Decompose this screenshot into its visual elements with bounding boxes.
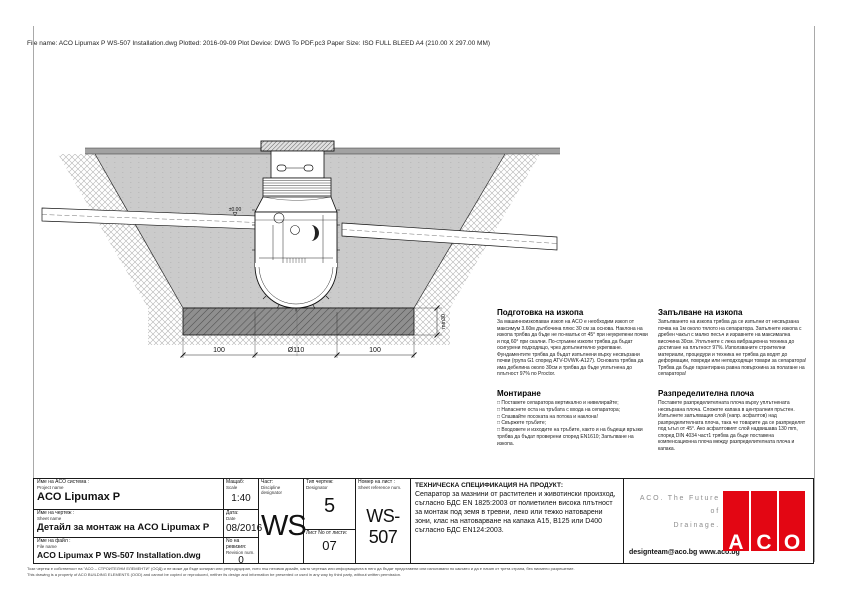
level-marker-label: ±0.00 <box>229 207 242 213</box>
titleblock-scale-cell: Мащаб: Scale 1:40 <box>224 479 259 510</box>
date-value: 08/2016 <box>226 523 256 534</box>
manhole-cover <box>261 141 334 151</box>
date-label-en: Date <box>226 517 256 522</box>
dim-label-left: 100 <box>213 347 225 354</box>
titleblock-revision-cell: No на ревизия: Revision num. 0 <box>224 538 259 563</box>
designator-label-en: Designator <box>306 486 353 491</box>
file-name: ACO Lipumax P WS-507 Installation.dwg <box>37 550 220 560</box>
mounting-step: □ Напаснете оста на тръбата с входа на с… <box>497 407 649 414</box>
disclaimer-bulgarian: Този чертеж е собственост на "АСО – СТРО… <box>27 566 575 571</box>
titleblock-designator-cell: Тип чертеж: Designator 5 Лист No от лист… <box>304 479 356 563</box>
note-preparation-body: За машинноизкопаван изкоп на ACO е необх… <box>497 319 649 378</box>
revision-value: 0 <box>226 555 256 566</box>
brand-slogan: ACO. The Future of Drainage. <box>632 492 720 532</box>
access-shaft <box>271 151 324 178</box>
scale-label-en: Scale <box>226 486 256 491</box>
title-block: Име на ACO система : Project name ACO Li… <box>33 478 814 564</box>
titleblock-date-cell: Дата: Date 08/2016 <box>224 510 259 538</box>
aco-logo-bar: C <box>751 491 777 551</box>
note-preparation: Подготовка на изкопа За машинноизкопаван… <box>497 308 649 378</box>
brand-slogan-line1: ACO. The Future of <box>632 492 720 519</box>
note-preparation-title: Подготовка на изкопа <box>497 308 649 317</box>
titleblock-brand-cell: ACO. The Future of Drainage. designteam@… <box>624 479 813 563</box>
note-plate-title: Разпределителна плоча <box>658 389 810 398</box>
reference-value: WS-507 <box>358 506 408 548</box>
reference-label-en: Sheet reference num. <box>358 486 408 491</box>
mounting-step: □ Свържете тръбите; <box>497 420 649 427</box>
discipline-label-en: Discipline designator <box>261 486 301 496</box>
spec-body: Сепаратор за мазнини от растителен и жив… <box>415 490 619 535</box>
aco-logo: A C O <box>723 491 805 551</box>
discipline-code: WS <box>261 510 301 543</box>
aco-logo-bar: A <box>723 491 749 551</box>
note-backfill-title: Запълване на изкопа <box>658 308 810 317</box>
note-mounting: Монтиране □ Поставете сепаратора вертика… <box>497 389 649 447</box>
mounting-step: □ Спазвайте посоката на потока и наклона… <box>497 414 649 421</box>
gravel-base-layer <box>183 308 414 335</box>
installation-cross-section-drawing: ±0.00 <box>33 130 563 390</box>
dim-label-min30: min30 <box>441 314 447 329</box>
corrugated-riser <box>263 178 331 197</box>
note-distribution-plate: Разпределителна плоча Поставете разпреде… <box>658 389 810 452</box>
designator-value: 5 <box>306 495 353 518</box>
titleblock-spec-cell: ТЕХНИЧЕСКА СПЕЦИФИКАЦИЯ НА ПРОДУКТ: Сепа… <box>411 479 624 563</box>
sheet-no-label: Лист No от листи: <box>306 531 353 537</box>
titleblock-sheetname-cell: Име на чертеж : Sheet name Детайл за мон… <box>34 510 224 538</box>
brand-slogan-line2: Drainage. <box>632 519 720 532</box>
note-backfill-body: Запълването на изкопа трябва да се изпъл… <box>658 319 810 378</box>
note-backfill: Запълване на изкопа Запълването на изкоп… <box>658 308 810 378</box>
mounting-step: □ Поставете сепаратора вертикално и ниве… <box>497 400 649 407</box>
note-mounting-title: Монтиране <box>497 389 649 398</box>
plot-file-info: File name: ACO Lipumax P WS-507 Installa… <box>27 40 490 47</box>
disclaimer-english: This drawing is a property of ACO BUILDI… <box>27 572 401 577</box>
mounting-step: □ Входовете и изходите на тръбите, както… <box>497 427 649 447</box>
titleblock-filename-cell: Име на файл : File name ACO Lipumax P WS… <box>34 538 224 563</box>
aco-logo-letter: C <box>751 532 777 553</box>
spec-title: ТЕХНИЧЕСКА СПЕЦИФИКАЦИЯ НА ПРОДУКТ: <box>415 482 619 490</box>
sheet-no-value: 07 <box>306 538 353 553</box>
aco-logo-letter: O <box>779 532 805 553</box>
sheet-border-right <box>814 26 815 562</box>
scale-value: 1:40 <box>226 493 256 504</box>
drawing-sheet: File name: ACO Lipumax P WS-507 Installa… <box>0 0 842 595</box>
tank-shoulder <box>252 197 340 212</box>
titleblock-reference-cell: Номер на лист : Sheet reference num. WS-… <box>356 479 411 563</box>
aco-logo-letter: A <box>723 532 749 553</box>
note-plate-body: Поставете разпределителната плоча върху … <box>658 400 810 452</box>
project-name: ACO Lipumax P <box>37 491 220 503</box>
titleblock-project-cell: Име на ACO система : Project name ACO Li… <box>34 479 224 510</box>
sheet-name: Детайл за монтаж на ACO Lipumax P <box>37 522 220 533</box>
dim-label-right: 100 <box>369 347 381 354</box>
revision-label-bg: No на ревизия: <box>226 539 256 551</box>
tank-body <box>252 212 340 267</box>
titleblock-discipline-cell: Част: Discipline designator WS <box>259 479 304 563</box>
aco-logo-bar: O <box>779 491 805 551</box>
dim-label-diameter: Ø110 <box>288 347 305 354</box>
